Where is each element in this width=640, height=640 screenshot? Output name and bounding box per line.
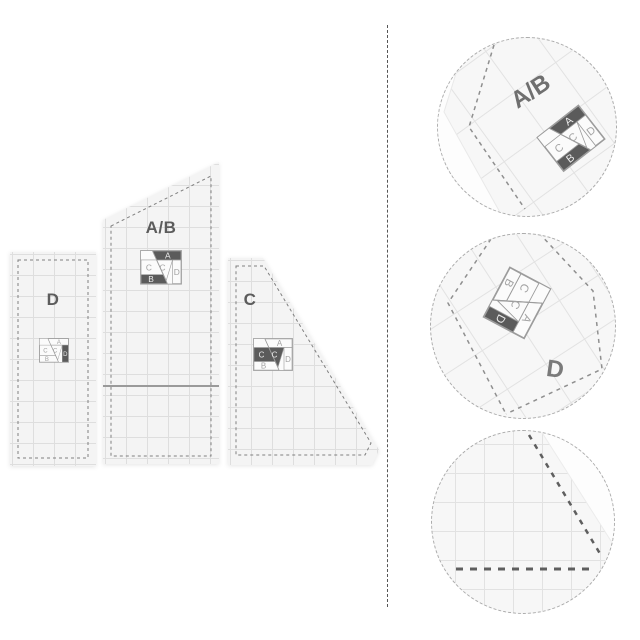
detail-circle-c-corner	[431, 430, 615, 614]
logo-letter-c-left: C	[259, 351, 265, 360]
logo-letter-a: A	[277, 339, 283, 348]
logo-letter-a: A	[165, 250, 171, 260]
logo-letter-b: B	[261, 362, 266, 371]
template-ab: A/B A C C D B	[103, 162, 219, 464]
template-ab-seam-line	[103, 162, 219, 464]
template-c: C A C C D B	[228, 258, 379, 465]
logo-letter-d: D	[285, 355, 291, 364]
product-photo: D A C C D B A/B A C C	[0, 0, 640, 640]
seam-dash-line-left	[448, 239, 506, 414]
logo-letter-a: A	[57, 340, 61, 346]
quilt-block-logo: A C C D B	[140, 250, 182, 285]
logo-letter-d: D	[174, 267, 180, 277]
template-edge-highlight	[541, 431, 614, 541]
logo-letter-c-left: C	[146, 262, 152, 272]
logo-piece-b	[141, 275, 167, 284]
logo-letter-b: B	[148, 274, 154, 284]
logo-letter-b: B	[45, 357, 49, 363]
logo-letter-c-right: C	[53, 349, 58, 355]
template-ab-logo: A C C D B	[140, 250, 182, 285]
template-edge-highlight	[438, 38, 502, 216]
logo-letter-c-left: C	[43, 349, 48, 355]
template-c-label: C	[238, 290, 262, 310]
quilt-block-logo: A C C D B	[253, 338, 293, 371]
template-ab-body: A/B A C C D B	[103, 162, 219, 464]
template-ab-label: A/B	[103, 218, 219, 238]
logo-letter-c-right: C	[160, 262, 166, 272]
detail-circle-ab: A/B A C C D B	[437, 37, 617, 217]
section-divider	[387, 25, 388, 607]
template-d-label: D	[10, 290, 96, 310]
template-ab-marking-line	[103, 385, 219, 387]
detail-circle-d: A C C D B D	[430, 233, 616, 419]
template-d-body: D A C C D B	[10, 252, 96, 466]
template-d-logo: A C C D B	[39, 338, 69, 363]
detail-circle-c-lines	[432, 431, 614, 613]
template-c-body: C A C C D B	[228, 258, 379, 465]
logo-letter-c-right: C	[272, 351, 278, 360]
quilt-block-logo: A C C D B	[39, 338, 69, 363]
template-c-logo: A C C D B	[253, 338, 293, 371]
detail-circle-d-label: D	[538, 354, 572, 386]
template-d: D A C C D B	[10, 252, 96, 466]
logo-letter-d: D	[63, 352, 68, 358]
